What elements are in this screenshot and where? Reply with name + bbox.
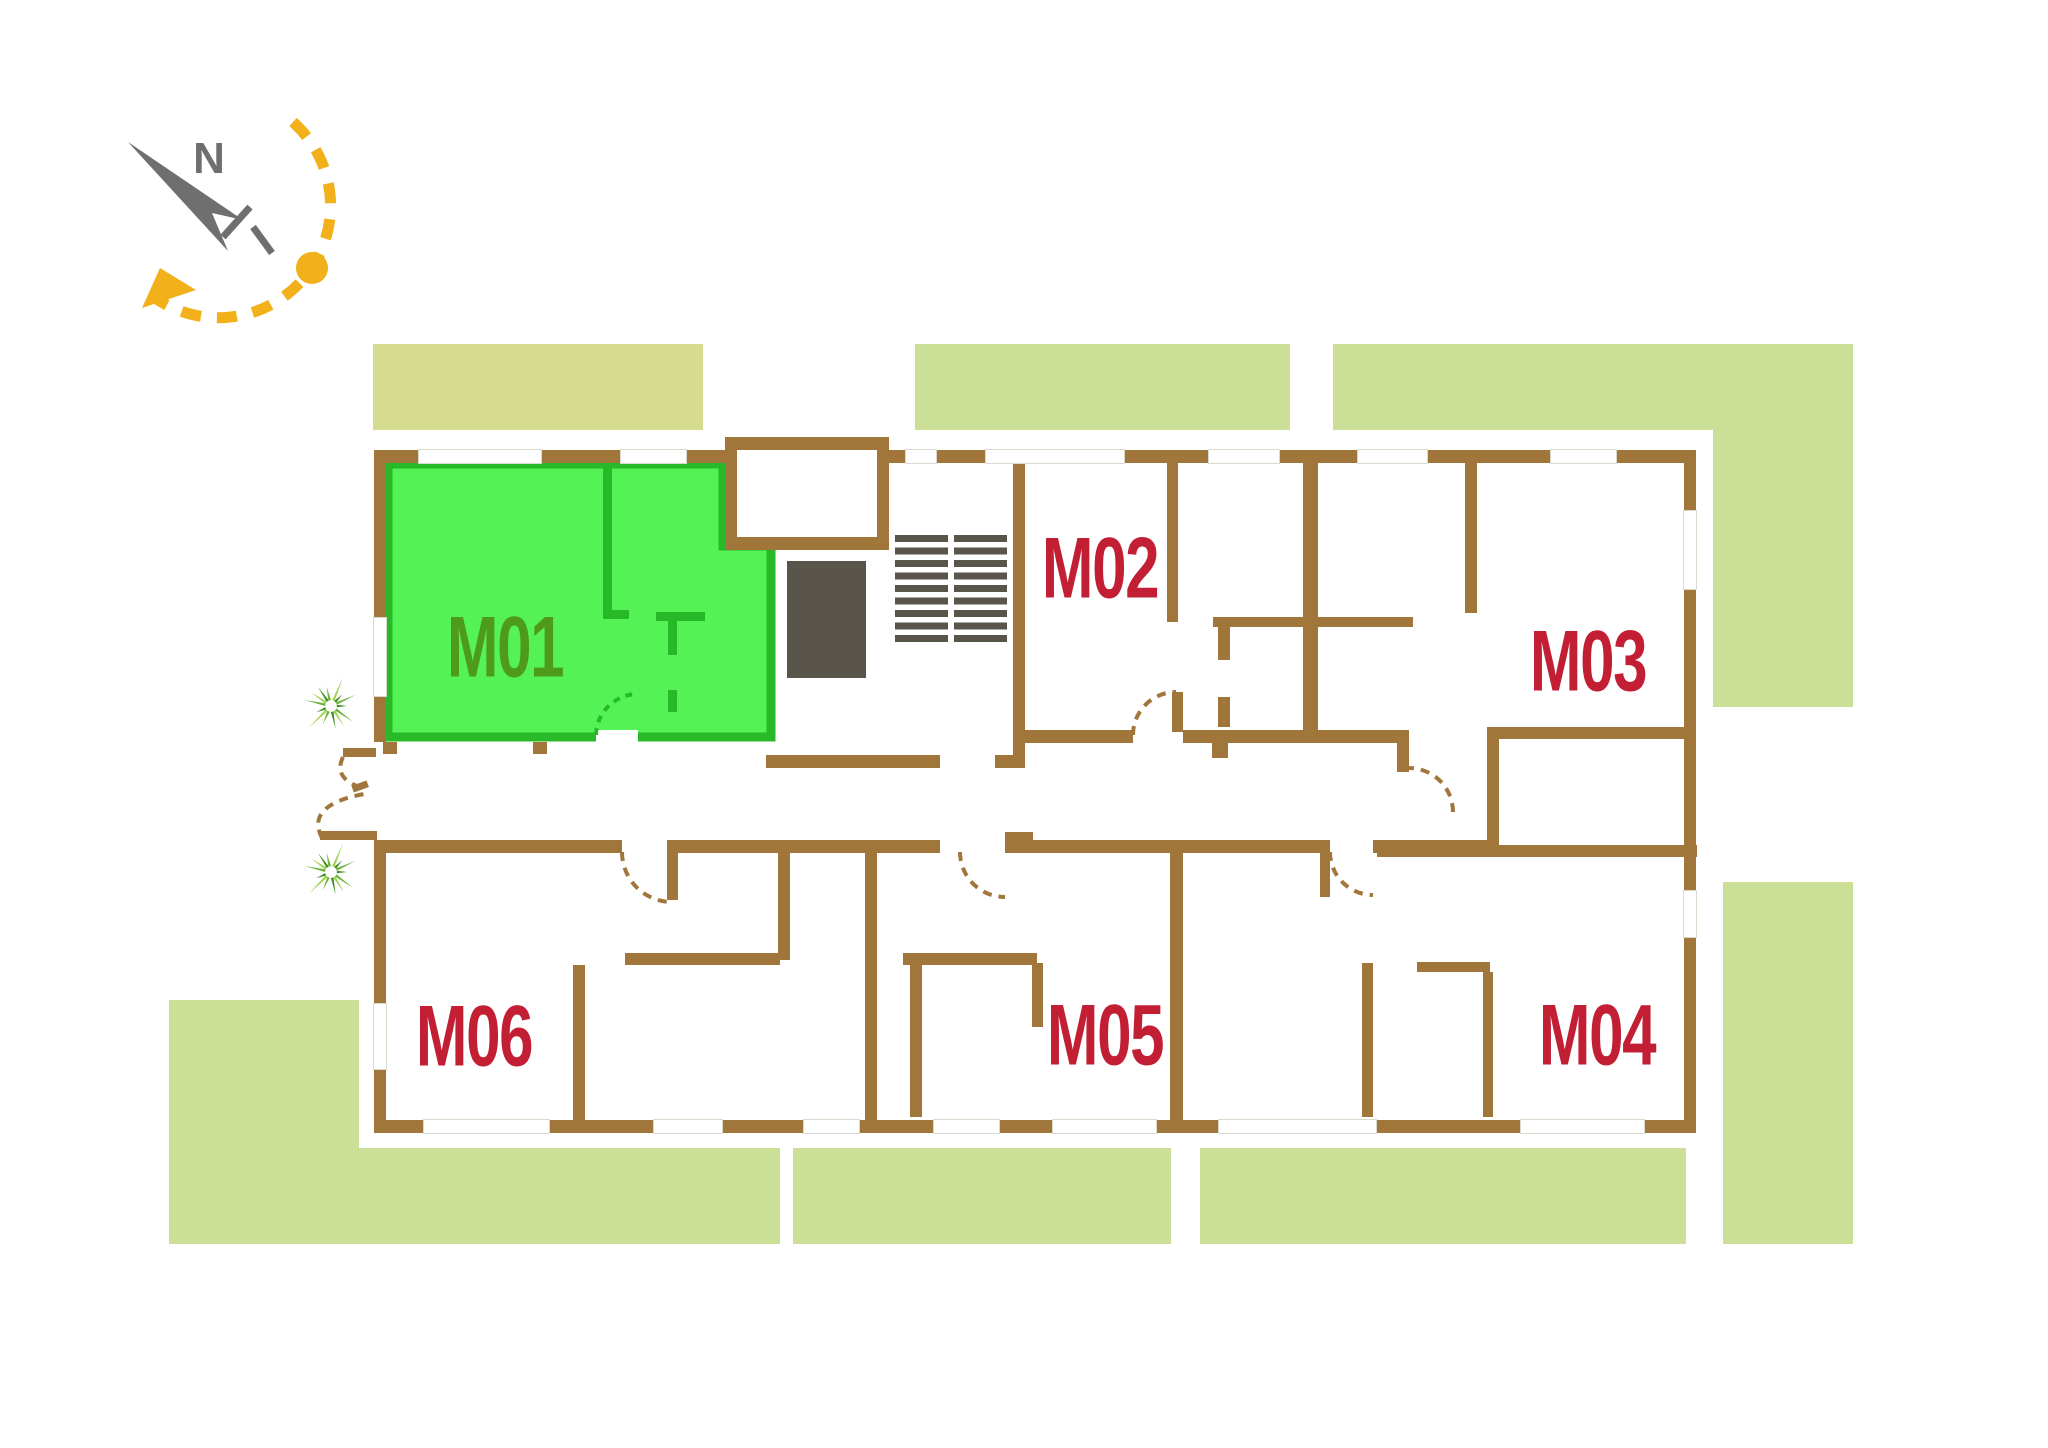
door-swing-arc: [1409, 768, 1453, 812]
door-swing-arc: [318, 794, 364, 838]
annotation-layer: N: [0, 0, 2048, 1448]
north-label: N: [193, 134, 225, 183]
sun-arrowhead-icon: [142, 268, 196, 308]
door-swing-arc: [622, 852, 672, 902]
compass-rose: N: [128, 122, 331, 318]
entrance-door-meeting-tick: [351, 780, 368, 792]
unit-label-m05[interactable]: M05: [1047, 987, 1163, 1086]
plants-group: [305, 677, 356, 894]
unit-label-m04[interactable]: M04: [1539, 987, 1655, 1086]
unit-label-m06[interactable]: M06: [416, 988, 532, 1087]
unit-label-m01[interactable]: M01: [447, 599, 563, 698]
needle-tail: [253, 227, 272, 253]
plant-icon: [305, 677, 356, 728]
door-swing-arc: [1133, 692, 1176, 735]
floor-plan-canvas: N M01M02M03M04M05M06: [0, 0, 2048, 1448]
door-swing-arc: [1330, 852, 1373, 895]
unit-label-m02[interactable]: M02: [1042, 520, 1158, 619]
door-swing-arc: [960, 852, 1005, 897]
unit-label-m03[interactable]: M03: [1530, 613, 1646, 712]
plant-icon: [305, 843, 356, 894]
door-swing-arcs: [318, 692, 1453, 902]
sun-dot-icon: [296, 252, 328, 284]
